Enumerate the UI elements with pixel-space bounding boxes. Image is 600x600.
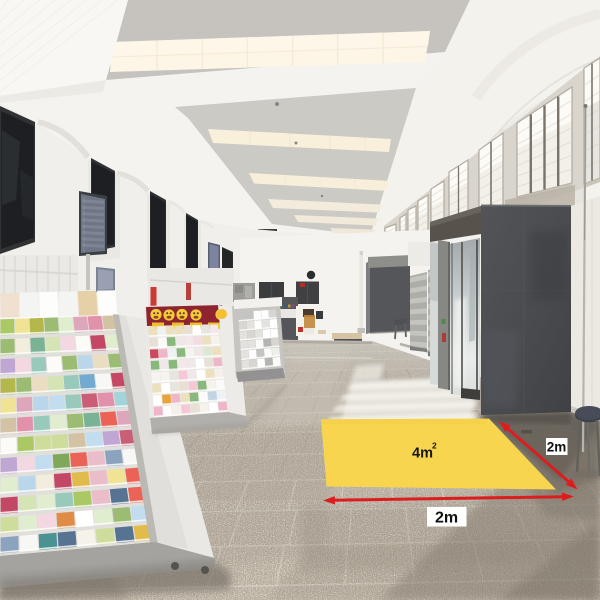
- svg-text:2m: 2m: [547, 440, 567, 455]
- svg-text:4m: 4m: [412, 446, 433, 462]
- svg-text:2: 2: [432, 441, 437, 451]
- svg-text:2m: 2m: [435, 510, 458, 527]
